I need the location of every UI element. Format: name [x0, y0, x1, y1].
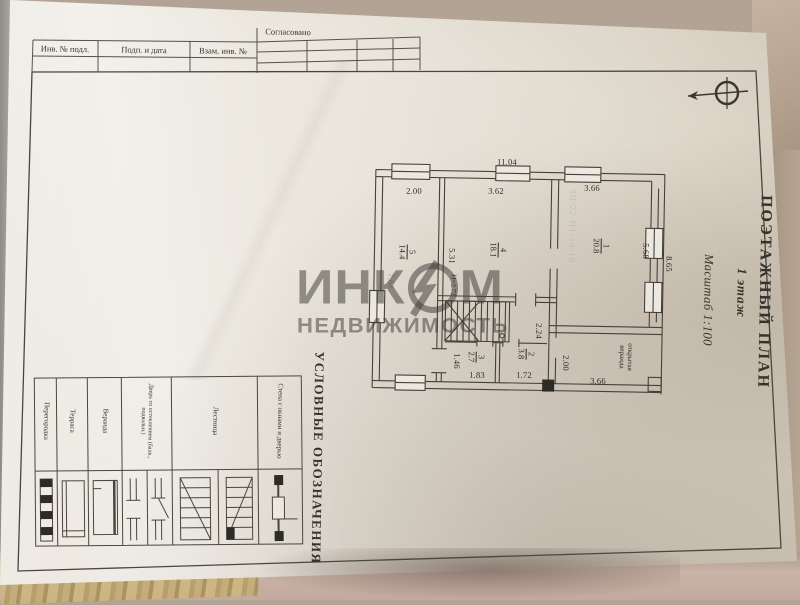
legend-item-terrace: Терраса — [68, 409, 75, 433]
room-label-4: 418.1 — [488, 242, 508, 257]
legend-item-veranda: Веранда — [101, 409, 108, 434]
legend-symbol-door-b — [151, 478, 169, 540]
dim-overall-width: 11.04 — [497, 158, 517, 167]
legend-title: УСЛОВНЫЕ ОБОЗНАЧЕНИЯ — [310, 351, 327, 564]
legend-symbol-partition — [40, 479, 53, 541]
inv-col-header-1: Инв. № подл. — [41, 44, 90, 53]
dim-room3-depth: 1.46 — [453, 353, 462, 369]
room-area: 14.4 — [397, 244, 408, 259]
legend-item-partition: Перегородка — [42, 402, 50, 440]
dim-room2-width: 1.72 — [516, 371, 532, 380]
room-label-5: 514.4 — [397, 244, 417, 259]
watermark-text-left: ИНК — [296, 264, 406, 312]
room-number: 4 — [499, 248, 508, 252]
legend-symbol-veranda — [93, 480, 117, 534]
legend-item-stairs: Лестница — [211, 407, 218, 436]
inv-col-header-3: Взам. инв. № — [199, 46, 247, 55]
room-number: 5 — [408, 250, 417, 254]
legend-table — [34, 376, 302, 546]
legend-symbol-door-a — [126, 478, 141, 540]
dim-room2-depth: 2.24 — [535, 323, 544, 339]
legend-item-wall: Стена с окнами и дверью — [275, 375, 285, 467]
dim-veranda-width: 3.66 — [590, 377, 606, 386]
room-area: 18.1 — [488, 242, 499, 257]
dim-room3-width: 1.83 — [469, 371, 485, 380]
approval-table — [257, 37, 420, 72]
legend-symbol-terrace — [62, 481, 84, 537]
door-threshold — [542, 379, 554, 391]
photo-of-floor-plan-document: Согласовано Инв. № подл. Подп. и дата Вз… — [0, 0, 800, 600]
legend-symbol-stairs-b — [226, 477, 253, 539]
scale-label: Масштаб 1:100 — [701, 254, 715, 346]
room-number: 2 — [527, 352, 536, 356]
room-number: 1 — [602, 244, 611, 248]
room-label-3: 32.7 — [466, 352, 486, 363]
dim-room1-depth: 5.68 — [642, 243, 651, 259]
legend-symbol-stairs-a — [180, 478, 211, 540]
dim-room1-width: 3.66 — [584, 184, 600, 193]
approval-label: Согласовано — [265, 27, 311, 36]
page-subtitle: 1 этаж — [735, 268, 749, 318]
watermark-logo-circle — [408, 263, 458, 313]
dim-room4-width: 3.62 — [488, 187, 504, 196]
veranda-label: открытая веранда — [618, 339, 635, 375]
inv-col-header-2: Подп. и дата — [121, 45, 167, 54]
north-symbol — [688, 77, 748, 109]
veranda-pillar — [648, 377, 661, 391]
dim-room5-width: 2.00 — [406, 187, 422, 196]
room-area: 20.8 — [591, 238, 602, 253]
watermark-row: ИНК М — [296, 262, 506, 314]
dim-veranda-depth: 2.00 — [562, 355, 571, 371]
page-title: ПОЭТАЖНЫЙ ПЛАН — [754, 195, 773, 389]
room-area: 2.7 — [466, 352, 477, 363]
watermark-line2: НЕДВИЖИМОСТЬ — [297, 316, 509, 337]
faint-stamp: ЗП/22-П1-10/10 — [567, 189, 577, 263]
legend-item-door: Дверь со остеклением (балк., подвальн.) — [138, 382, 153, 460]
dim-room1-outer: 8.65 — [665, 256, 674, 272]
room-area: 3.8 — [516, 349, 527, 360]
room-label-2: 23.8 — [516, 349, 536, 360]
room-number: 3 — [477, 355, 486, 359]
room-label-1: 120.8 — [591, 238, 611, 253]
watermark-text-right: М — [460, 264, 504, 312]
legend-symbol-wall-window — [272, 475, 298, 541]
